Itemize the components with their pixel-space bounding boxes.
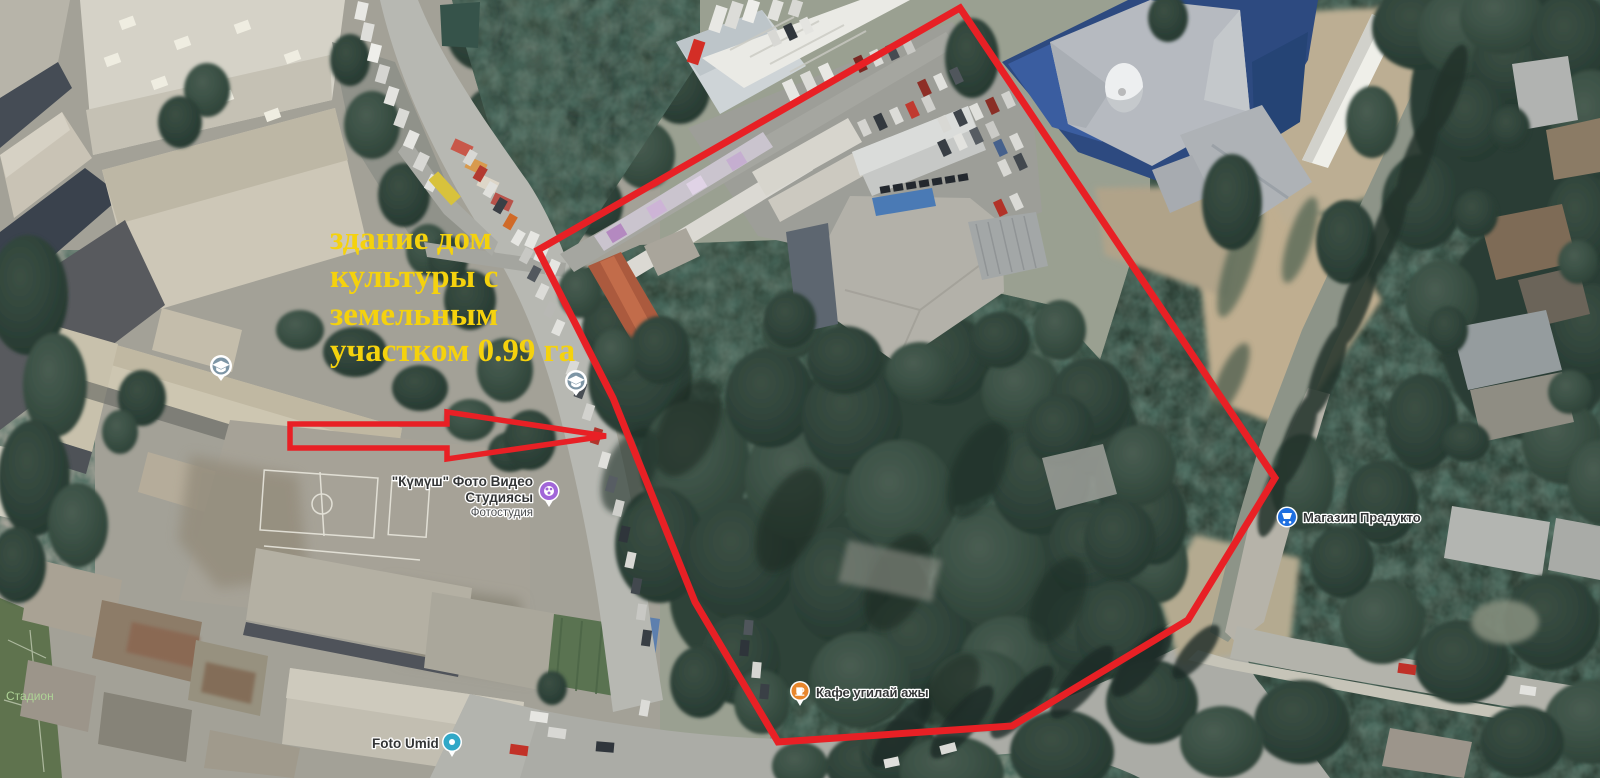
svg-text:Кафе угилай ажы: Кафе угилай ажы [816,685,929,700]
svg-text:Магазин Прадукто: Магазин Прадукто [1303,510,1421,525]
svg-text:земельным: земельным [330,297,498,333]
svg-text:культуры с: культуры с [330,259,498,295]
svg-text:Студиясы: Студиясы [465,490,533,505]
svg-text:Фотостудия: Фотостудия [471,507,533,519]
svg-text:"Күмүш" Фото Видео: "Күмүш" Фото Видео [392,474,533,489]
svg-text:здание дом: здание дом [330,221,492,257]
svg-text:Foto Umid: Foto Umid [372,736,439,751]
svg-text:Стадион: Стадион [6,689,54,703]
svg-text:участком 0.99 га: участком 0.99 га [330,333,575,369]
